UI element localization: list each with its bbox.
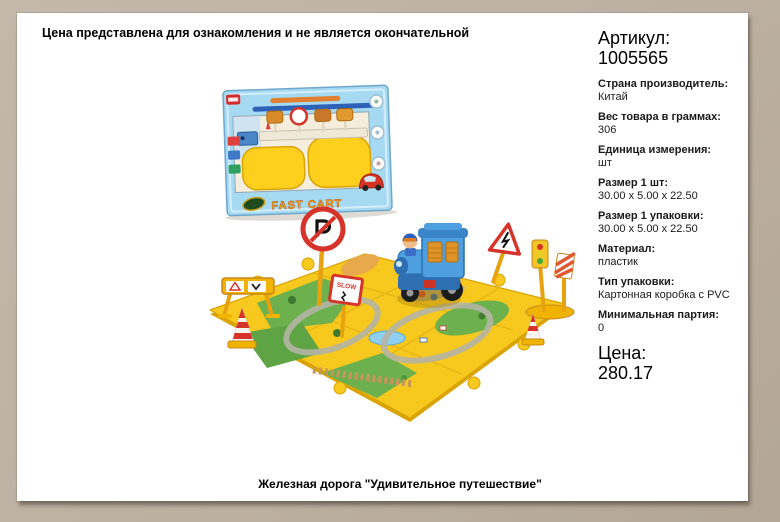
detail-country: Страна производитель: Китай: [598, 78, 756, 104]
product-details: Страна производитель: Китай Вес товара в…: [598, 78, 756, 335]
product-title: Железная дорога "Удивительное путешестви…: [52, 477, 748, 491]
box-puzzle-piece: [242, 146, 305, 190]
train-icon: [394, 223, 468, 308]
box-train-picture: [237, 132, 257, 146]
catalog-card: { "page": { "disclaimer": "Цена представ…: [0, 0, 780, 522]
content-panel: Цена представлена для ознакомления и не …: [17, 13, 748, 501]
box-illustration: FAST CART: [221, 85, 398, 223]
detail-package-size: Размер 1 упаковки: 30.00 x 5.00 x 22.50: [598, 210, 756, 236]
warning-triangle-icon: [485, 222, 523, 285]
article-label: Артикул:: [598, 28, 756, 48]
product-photo: FAST CART: [172, 78, 592, 428]
play-mat: [210, 250, 565, 422]
detail-min-lot: Минимальная партия: 0: [598, 309, 756, 335]
detail-unit: Единица измерения: шт: [598, 144, 756, 170]
detail-weight: Вес товара в граммах: 306: [598, 111, 756, 137]
price-disclaimer: Цена представлена для ознакомления и не …: [42, 26, 469, 40]
product-info-column: Артикул: 1005565 Страна производитель: К…: [598, 28, 756, 383]
price-label: Цена:: [598, 343, 756, 363]
article-value: 1005565: [598, 48, 756, 68]
price-block: Цена: 280.17: [598, 343, 756, 383]
detail-item-size: Размер 1 шт: 30.00 x 5.00 x 22.50: [598, 177, 756, 203]
detail-package-type: Тип упаковки: Картонная коробка с PVC: [598, 276, 756, 302]
detail-material: Материал: пластик: [598, 243, 756, 269]
traffic-light-icon: [526, 240, 575, 319]
price-value: 280.17: [598, 363, 756, 383]
